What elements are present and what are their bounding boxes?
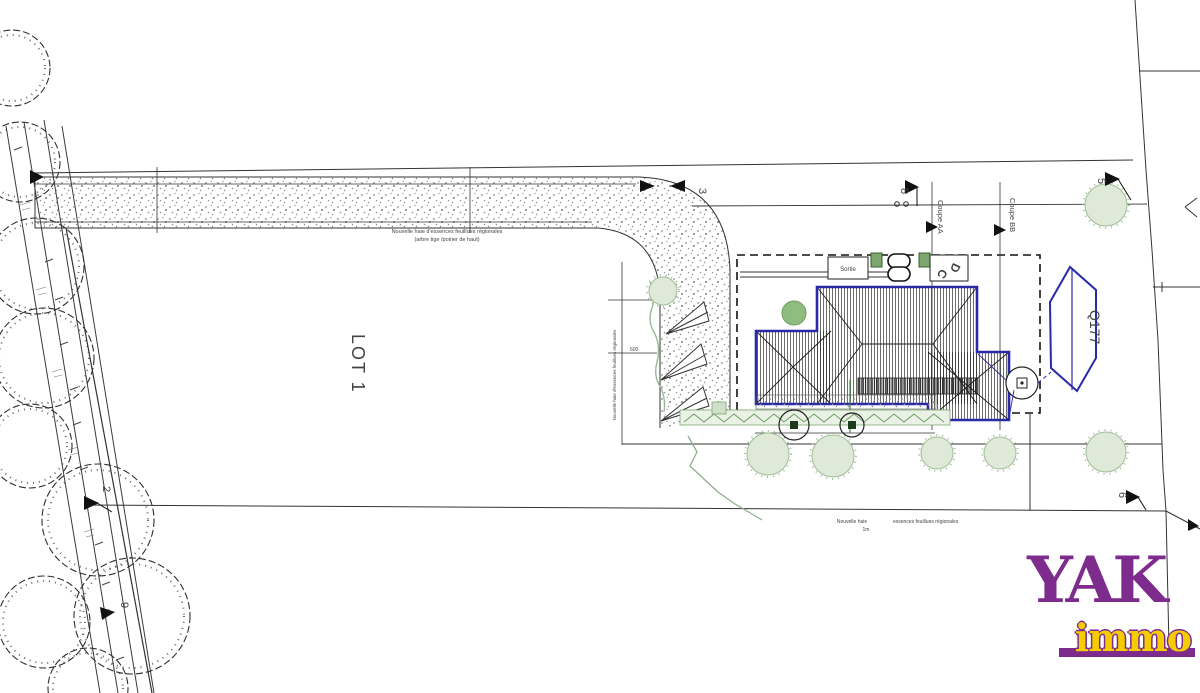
marker-6: 6 xyxy=(1116,490,1146,510)
hedge-note-bottom-1: Nouvelle haie xyxy=(837,519,868,525)
southeast-arrowhead xyxy=(1188,519,1199,531)
marker-2-label: 2 xyxy=(100,486,112,492)
planter-square xyxy=(919,253,930,267)
marker-9-label: 9 xyxy=(118,602,130,608)
lot-label: LOT 1 xyxy=(348,334,368,394)
hedge-note-side: Nouvelle haie d'essences feuillues régio… xyxy=(612,329,617,420)
north-inner-line xyxy=(692,204,1147,206)
logo-brand-text: YAK xyxy=(995,551,1197,612)
left-tree-row xyxy=(0,30,190,693)
survey-micro-labels xyxy=(20,202,110,617)
marker-6-label: 6 xyxy=(1116,492,1128,498)
tree-green xyxy=(1083,182,1129,228)
tree-green-dark xyxy=(782,301,806,325)
tree xyxy=(0,308,94,408)
hedge-note-top-1: Nouvelle haie d'essences feuillues régio… xyxy=(392,229,503,235)
marker-5-label: 5 xyxy=(1095,178,1107,184)
tree xyxy=(0,576,90,668)
tree-green xyxy=(745,431,791,477)
tree-green xyxy=(1084,430,1128,474)
hedge-driveway xyxy=(35,177,730,428)
marker-8-label: 8 xyxy=(898,188,910,194)
section-bb-label: Coupe BB xyxy=(1008,198,1017,232)
yak-immo-logo: YAK immo xyxy=(995,551,1197,663)
terrace-stipple xyxy=(756,395,936,409)
south-steps-strip xyxy=(858,378,978,394)
dim-600-label: 600 xyxy=(630,347,639,353)
section-aa-label: Coupe AA xyxy=(936,200,945,234)
tree xyxy=(0,404,72,488)
road-side-boundary xyxy=(66,228,152,693)
hedge-note-bottom-2: 1m xyxy=(863,527,870,533)
entry-box-label: Sortie xyxy=(840,267,856,273)
double-door-symbol xyxy=(888,254,910,281)
north-boundary xyxy=(35,160,1133,173)
north-wall-lines xyxy=(740,272,905,277)
driveway-stipple-fill xyxy=(35,177,730,428)
marker-3-label: 3 xyxy=(696,188,708,194)
garden-square xyxy=(712,402,726,414)
tree-green xyxy=(810,433,856,479)
planter-square xyxy=(871,253,882,267)
logo-sub-text: immo xyxy=(1075,615,1191,660)
survey-point xyxy=(904,202,909,207)
tree xyxy=(48,648,128,693)
tree-green xyxy=(919,435,955,471)
survey-point xyxy=(895,202,900,207)
marker-8: 8 xyxy=(898,180,919,206)
tree xyxy=(0,30,50,106)
east-open-arrow xyxy=(1185,198,1197,217)
east-branch-mid xyxy=(1153,282,1200,292)
tank-label: Q177 xyxy=(1087,310,1103,344)
flag-icon xyxy=(100,607,115,620)
hedge-note-bottom-3: essences feuillues régionales xyxy=(893,519,959,525)
flag-icon xyxy=(84,496,99,510)
site-plan-page: Sortie C D xyxy=(0,0,1200,693)
tree-green xyxy=(982,435,1018,471)
hedge-note-top-2: (arbre tige /poirier de haut) xyxy=(414,237,479,243)
tree xyxy=(42,464,154,576)
south-boundary xyxy=(85,505,1166,511)
